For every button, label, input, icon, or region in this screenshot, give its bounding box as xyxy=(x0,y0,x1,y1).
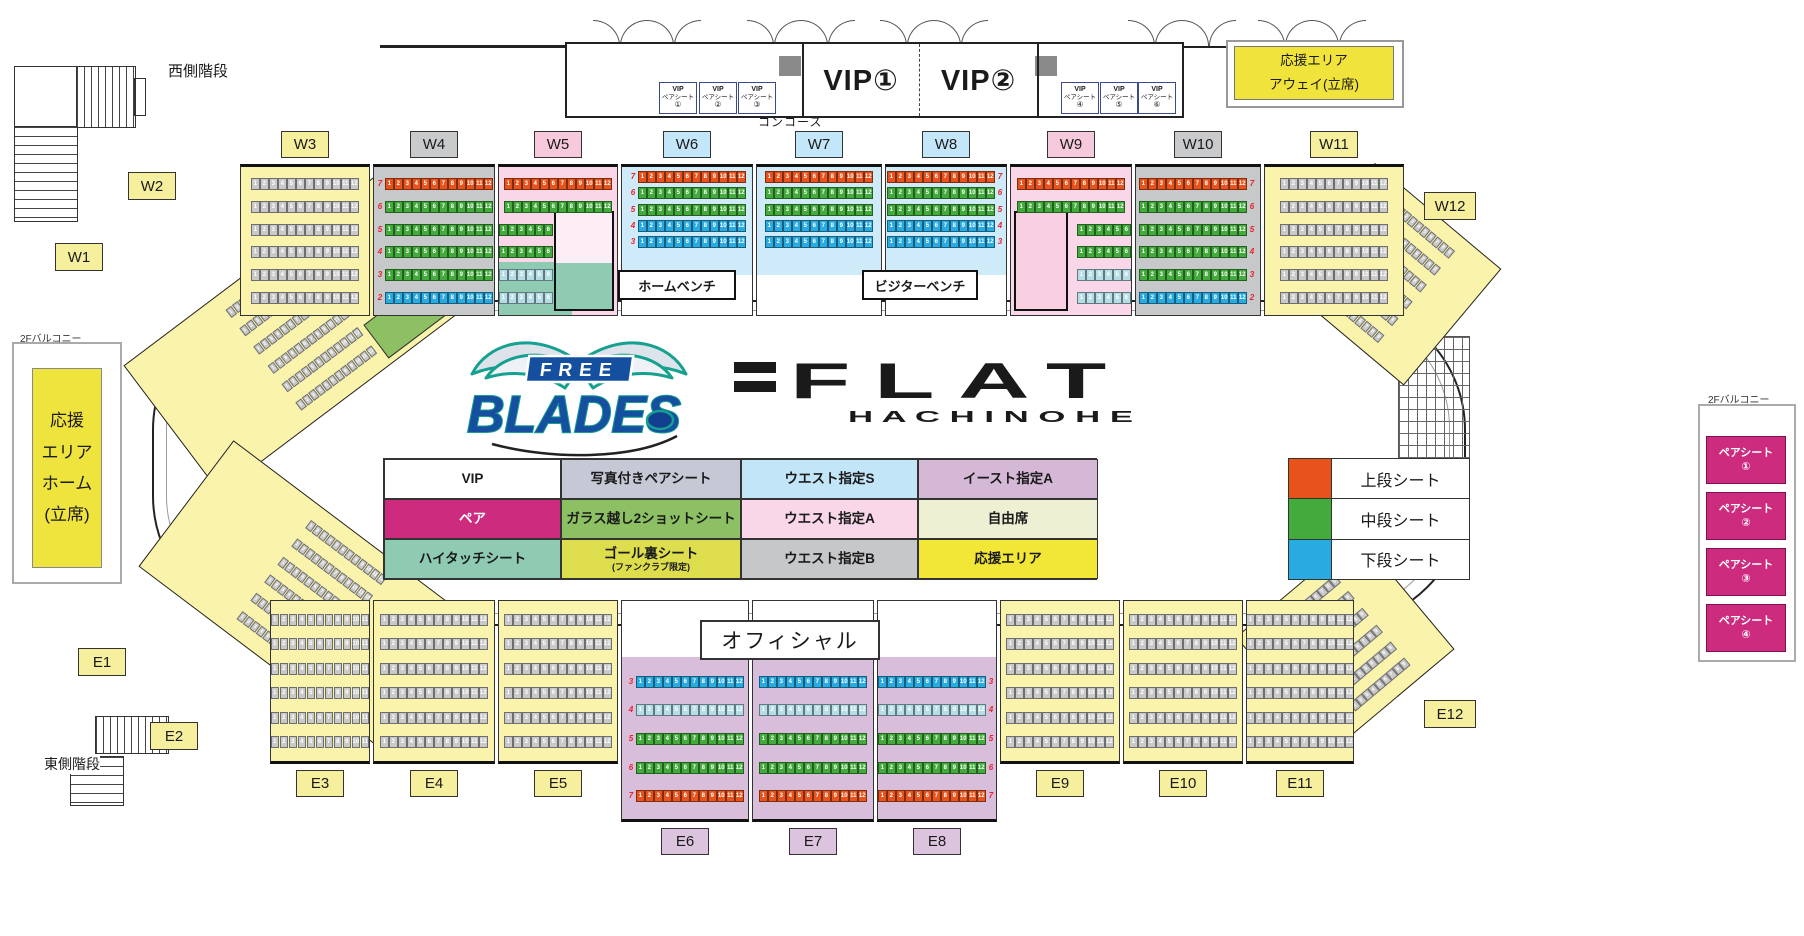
seat: 1 xyxy=(251,224,260,236)
seat: 7 xyxy=(813,704,822,716)
legend-cell: VIP xyxy=(384,459,561,499)
seat: 12 xyxy=(1228,712,1237,724)
seat-row: 123456789101112 xyxy=(374,638,494,650)
seat-row: 123456789101112 xyxy=(1011,201,1131,213)
seat: 7 xyxy=(305,246,314,258)
seat: 10 xyxy=(1361,292,1370,304)
seat: 5 xyxy=(1282,638,1291,650)
seat: 5 xyxy=(672,790,681,802)
seat: 3 xyxy=(269,201,278,213)
seat: 3 xyxy=(783,187,792,199)
seat: 1 xyxy=(759,762,768,774)
row-number: 6 xyxy=(986,762,996,774)
seat-row: 123456789101112 xyxy=(1001,712,1119,724)
official-box: オフィシャル xyxy=(700,620,880,660)
seat: 6 xyxy=(544,224,553,236)
seat: 12 xyxy=(350,292,359,304)
seat-row: 3123456789101112 xyxy=(622,236,752,248)
seat-row: 1234567891011 xyxy=(271,736,369,748)
seat: 6 xyxy=(1174,663,1183,675)
vip-wall xyxy=(1037,44,1039,116)
seat: 8 xyxy=(1080,178,1089,190)
seat: 5 xyxy=(307,638,316,650)
seat: 4 xyxy=(1307,201,1316,213)
seat: 8 xyxy=(699,733,708,745)
seat: 4 xyxy=(298,614,307,626)
seat: 5 xyxy=(540,663,549,675)
seat: 6 xyxy=(296,246,305,258)
seat: 3 xyxy=(1147,712,1156,724)
west-stairs-label: 西側階段 xyxy=(168,60,228,81)
seat: 7 xyxy=(1183,687,1192,699)
seat: 4 xyxy=(792,187,801,199)
seat: 3 xyxy=(289,614,298,626)
seat: 12 xyxy=(603,178,612,190)
seat: 6 xyxy=(1122,269,1131,281)
seat: 5 xyxy=(416,614,425,626)
seat: 7 xyxy=(690,733,699,745)
seat: 7 xyxy=(439,246,448,258)
seat: 8 xyxy=(334,638,343,650)
seat: 6 xyxy=(296,269,305,281)
seat: 7 xyxy=(1060,614,1069,626)
seat: 4 xyxy=(278,269,287,281)
seat: 4 xyxy=(412,246,421,258)
row-number: 3 xyxy=(628,236,638,248)
seat: 10 xyxy=(846,204,855,216)
seat: 1 xyxy=(504,201,513,213)
seat: 2 xyxy=(774,220,783,232)
seat: 2 xyxy=(1026,178,1035,190)
seat: 2 xyxy=(774,187,783,199)
row-number: 4 xyxy=(995,220,1005,232)
seat-row: 1234567891011123 xyxy=(1136,269,1260,281)
seat-row: 123456789101112 xyxy=(374,736,494,748)
seat: 2 xyxy=(774,236,783,248)
seat: 8 xyxy=(941,762,950,774)
seat: 8 xyxy=(1069,663,1078,675)
seat: 7 xyxy=(434,687,443,699)
seat-row: 1234567891011126 xyxy=(886,187,1006,199)
seat: 6 xyxy=(804,676,813,688)
seat: 11 xyxy=(1096,663,1105,675)
seat: 12 xyxy=(1345,712,1354,724)
seat: 1 xyxy=(504,638,513,650)
seat: 10 xyxy=(1087,687,1096,699)
seat: 8 xyxy=(941,704,950,716)
seat: 5 xyxy=(1113,224,1122,236)
seat: 3 xyxy=(1298,178,1307,190)
seat: 10 xyxy=(332,269,341,281)
home-bench: ホームベンチ xyxy=(618,270,736,300)
seat: 5 xyxy=(416,638,425,650)
seat: 11 xyxy=(968,733,977,745)
seat: 1 xyxy=(887,171,896,183)
seat: 3 xyxy=(403,224,412,236)
seat: 12 xyxy=(858,676,867,688)
seat: 7 xyxy=(692,236,701,248)
seat: 11 xyxy=(968,704,977,716)
seat: 11 xyxy=(1336,687,1345,699)
seat: 3 xyxy=(1264,736,1273,748)
seat-row: 123456789101112 xyxy=(1124,638,1242,650)
seat: 2 xyxy=(260,224,269,236)
seat: 2 xyxy=(1255,614,1264,626)
seat: 9 xyxy=(343,712,352,724)
seat: 10 xyxy=(840,704,849,716)
seat: 6 xyxy=(549,201,558,213)
seat: 9 xyxy=(576,201,585,213)
seat: 1 xyxy=(1017,201,1026,213)
seat-row: 123456 xyxy=(499,246,617,258)
seat: 1 xyxy=(1006,663,1015,675)
seat: 7 xyxy=(1300,712,1309,724)
seat: 8 xyxy=(443,638,452,650)
seat: 10 xyxy=(352,736,361,748)
seat: 12 xyxy=(1379,178,1388,190)
seat: 11 xyxy=(1336,712,1345,724)
seat: 6 xyxy=(1062,201,1071,213)
seat: 9 xyxy=(1078,712,1087,724)
seat: 9 xyxy=(457,269,466,281)
seat: 3 xyxy=(398,736,407,748)
seat: 6 xyxy=(544,246,553,258)
seat-row: 123456789101112 xyxy=(241,269,369,281)
seat: 4 xyxy=(663,676,672,688)
seat: 1 xyxy=(380,663,389,675)
seat: 1 xyxy=(1006,712,1015,724)
seat: 5 xyxy=(307,663,316,675)
seat: 12 xyxy=(350,246,359,258)
seat: 9 xyxy=(1078,638,1087,650)
seat: 6 xyxy=(932,236,941,248)
seat: 8 xyxy=(1192,712,1201,724)
seat: 5 xyxy=(795,704,804,716)
seat: 8 xyxy=(822,762,831,774)
seat: 5 xyxy=(1042,638,1051,650)
seat: 5 xyxy=(1042,614,1051,626)
seat: 6 xyxy=(316,638,325,650)
section-W5: 1234567891011121234567891011121234561234… xyxy=(498,164,618,316)
seat: 10 xyxy=(1220,269,1229,281)
seat: 6 xyxy=(430,246,439,258)
seat: 5 xyxy=(307,736,316,748)
seat: 4 xyxy=(905,676,914,688)
seat: 4 xyxy=(531,663,540,675)
seat: 3 xyxy=(1298,201,1307,213)
section-label-W1: W1 xyxy=(55,243,103,271)
svg-text:FREE: FREE xyxy=(538,360,620,381)
seat-row: 123456789101112 xyxy=(374,663,494,675)
seat: 3 xyxy=(656,171,665,183)
seat-row: 123456 xyxy=(1011,292,1131,304)
seat: 9 xyxy=(831,733,840,745)
seat: 3 xyxy=(1024,712,1033,724)
seat: 4 xyxy=(278,246,287,258)
seat: 8 xyxy=(701,220,710,232)
section-label-E11: E11 xyxy=(1276,770,1324,797)
seat: 1 xyxy=(878,790,887,802)
seat: 9 xyxy=(837,220,846,232)
seat: 6 xyxy=(549,638,558,650)
seat: 9 xyxy=(1078,736,1087,748)
seat: 10 xyxy=(352,638,361,650)
seat: 3 xyxy=(1264,638,1273,650)
seat: 11 xyxy=(1219,736,1228,748)
seat: 5 xyxy=(795,676,804,688)
seat: 11 xyxy=(855,220,864,232)
seat: 12 xyxy=(1238,178,1247,190)
seat: 8 xyxy=(1192,638,1201,650)
seat: 3 xyxy=(1095,269,1104,281)
legend-label: ゴール裏シート xyxy=(604,546,699,562)
seat: 11 xyxy=(594,712,603,724)
seat: 2 xyxy=(1289,269,1298,281)
seat-row: 123456789101112 xyxy=(499,736,617,748)
seat: 3 xyxy=(403,178,412,190)
seat: 3 xyxy=(1095,246,1104,258)
balcony-pair-seat-②: ペアシート② xyxy=(1706,492,1786,540)
seat: 1 xyxy=(504,663,513,675)
seat: 1 xyxy=(385,201,394,213)
seat: 11 xyxy=(361,736,370,748)
row-number: 6 xyxy=(626,762,636,774)
seat-row: 123456789101112 xyxy=(1265,178,1403,190)
seat: 6 xyxy=(1174,736,1183,748)
seat: 6 xyxy=(296,201,305,213)
seat: 1 xyxy=(1246,736,1255,748)
seat: 7 xyxy=(558,201,567,213)
seat: 4 xyxy=(412,178,421,190)
seat-row: 123456789101112 xyxy=(1265,269,1403,281)
legend-label: 写真付きペアシート xyxy=(591,471,712,487)
seat: 12 xyxy=(864,204,873,216)
seat: 5 xyxy=(421,246,430,258)
seat-row: 1234567891011 xyxy=(271,712,369,724)
seat: 4 xyxy=(412,292,421,304)
row-number: 5 xyxy=(986,733,996,745)
seat: 5 xyxy=(1053,201,1062,213)
seat: 12 xyxy=(1238,269,1247,281)
seat: 3 xyxy=(522,736,531,748)
seat-row: 123456789101112 xyxy=(1247,712,1353,724)
seat: 3 xyxy=(1298,292,1307,304)
seat: 11 xyxy=(849,704,858,716)
seat: 2 xyxy=(394,292,403,304)
seat: 11 xyxy=(1229,201,1238,213)
seat-row: 123456789101112 xyxy=(1265,246,1403,258)
seat: 6 xyxy=(1051,614,1060,626)
seat: 11 xyxy=(475,246,484,258)
seat: 7 xyxy=(932,676,941,688)
seat: 12 xyxy=(858,762,867,774)
seat: 11 xyxy=(1096,638,1105,650)
seat: 5 xyxy=(287,269,296,281)
seat: 1 xyxy=(1280,246,1289,258)
seat: 9 xyxy=(710,187,719,199)
seat: 8 xyxy=(822,676,831,688)
seat: 5 xyxy=(1165,614,1174,626)
seat: 3 xyxy=(289,736,298,748)
seat: 9 xyxy=(452,687,461,699)
legend-label: 応援エリア xyxy=(974,551,1042,567)
seat-row: 1234567891011125 xyxy=(886,204,1006,216)
seat: 2 xyxy=(389,663,398,675)
seat: 5 xyxy=(923,236,932,248)
seat-row: 1234567891011 xyxy=(271,663,369,675)
seat: 6 xyxy=(549,663,558,675)
seat: 2 xyxy=(887,790,896,802)
seat: 4 xyxy=(665,171,674,183)
seat: 11 xyxy=(1336,663,1345,675)
seat: 8 xyxy=(334,736,343,748)
seat: 12 xyxy=(858,790,867,802)
seat: 4 xyxy=(526,224,535,236)
vip-pair-seat-②: VIPペアシート② xyxy=(699,82,737,114)
seat: 3 xyxy=(896,733,905,745)
section-W10: 1234567891011127123456789101112612345678… xyxy=(1135,164,1261,316)
seat: 5 xyxy=(923,204,932,216)
seat: 4 xyxy=(278,224,287,236)
seat: 12 xyxy=(1105,663,1114,675)
seat: 3 xyxy=(1024,638,1033,650)
seat: 2 xyxy=(394,201,403,213)
tier-label: 下段シート xyxy=(1332,540,1469,579)
seat: 5 xyxy=(672,676,681,688)
seat: 6 xyxy=(316,712,325,724)
section-label-E1: E1 xyxy=(78,648,126,676)
seat: 1 xyxy=(251,292,260,304)
seat: 5 xyxy=(540,687,549,699)
seat: 1 xyxy=(887,220,896,232)
seat: 10 xyxy=(466,201,475,213)
seat: 7 xyxy=(1193,246,1202,258)
seat: 7 xyxy=(932,790,941,802)
seat: 11 xyxy=(1096,736,1105,748)
seat: 10 xyxy=(461,663,470,675)
seat: 10 xyxy=(1210,614,1219,626)
seat: 7 xyxy=(434,663,443,675)
seat: 1 xyxy=(251,246,260,258)
seat: 8 xyxy=(443,687,452,699)
seat: 9 xyxy=(1201,638,1210,650)
seat: 8 xyxy=(1309,663,1318,675)
seat: 8 xyxy=(941,676,950,688)
seat: 3 xyxy=(783,220,792,232)
seat: 4 xyxy=(905,704,914,716)
seat: 5 xyxy=(1316,201,1325,213)
section-label-W9: W9 xyxy=(1047,131,1095,158)
seat: 7 xyxy=(325,638,334,650)
seat: 8 xyxy=(828,220,837,232)
seat: 4 xyxy=(1033,687,1042,699)
seat: 7 xyxy=(1071,201,1080,213)
svg-text:FLAT: FLAT xyxy=(790,353,1130,409)
seat: 4 xyxy=(278,292,287,304)
seat: 11 xyxy=(977,236,986,248)
seat-row: 2123456789101112 xyxy=(374,292,494,304)
seat: 6 xyxy=(1184,201,1193,213)
seat: 6 xyxy=(549,712,558,724)
seat: 10 xyxy=(1361,178,1370,190)
seat: 11 xyxy=(475,201,484,213)
seat: 9 xyxy=(950,790,959,802)
seat: 8 xyxy=(950,204,959,216)
seat: 5 xyxy=(540,712,549,724)
seat: 11 xyxy=(968,676,977,688)
seat: 3 xyxy=(403,292,412,304)
seat: 5 xyxy=(801,236,810,248)
seat: 7 xyxy=(1334,224,1343,236)
seat: 12 xyxy=(1238,292,1247,304)
seat: 5 xyxy=(540,178,549,190)
seat: 7 xyxy=(558,687,567,699)
seat: 3 xyxy=(517,224,526,236)
seat: 4 xyxy=(1307,224,1316,236)
seat: 11 xyxy=(855,171,864,183)
seat: 3 xyxy=(1264,712,1273,724)
seat: 2 xyxy=(389,638,398,650)
section-label-W7: W7 xyxy=(795,131,843,158)
seat: 1 xyxy=(1077,269,1086,281)
seat: 5 xyxy=(674,236,683,248)
seat: 3 xyxy=(522,663,531,675)
seat: 11 xyxy=(1229,269,1238,281)
seat: 4 xyxy=(1104,292,1113,304)
seat: 11 xyxy=(1336,736,1345,748)
seat: 10 xyxy=(1327,712,1336,724)
seat: 10 xyxy=(1098,178,1107,190)
seat: 9 xyxy=(1201,614,1210,626)
seat: 2 xyxy=(1148,178,1157,190)
seat: 7 xyxy=(1183,614,1192,626)
seat: 4 xyxy=(1156,687,1165,699)
seat: 4 xyxy=(412,201,421,213)
seat-row: 123456 xyxy=(1011,246,1131,258)
seat: 4 xyxy=(1273,638,1282,650)
seat: 2 xyxy=(260,201,269,213)
seat: 7 xyxy=(932,733,941,745)
seat: 8 xyxy=(1192,614,1201,626)
seat: 2 xyxy=(1289,178,1298,190)
seat: 3 xyxy=(1298,224,1307,236)
seat: 9 xyxy=(708,733,717,745)
seat: 5 xyxy=(801,171,810,183)
seat: 4 xyxy=(792,171,801,183)
section-label-W5: W5 xyxy=(534,131,582,158)
seat: 2 xyxy=(260,292,269,304)
seat: 12 xyxy=(603,663,612,675)
section-label-E10: E10 xyxy=(1159,770,1207,797)
seat: 3 xyxy=(403,269,412,281)
seat: 8 xyxy=(443,712,452,724)
seat: 3 xyxy=(654,762,663,774)
legend-label: ウエスト指定B xyxy=(784,551,875,567)
seat: 11 xyxy=(594,201,603,213)
seat: 4 xyxy=(531,201,540,213)
seat: 9 xyxy=(708,790,717,802)
seat: 3 xyxy=(403,201,412,213)
seat: 9 xyxy=(1089,201,1098,213)
seat: 8 xyxy=(443,614,452,626)
seat: 3 xyxy=(1157,292,1166,304)
seat: 5 xyxy=(1165,638,1174,650)
section-label-W2: W2 xyxy=(128,172,176,200)
seat: 7 xyxy=(1071,178,1080,190)
seat: 7 xyxy=(558,736,567,748)
seat: 5 xyxy=(287,292,296,304)
seat: 7 xyxy=(692,187,701,199)
